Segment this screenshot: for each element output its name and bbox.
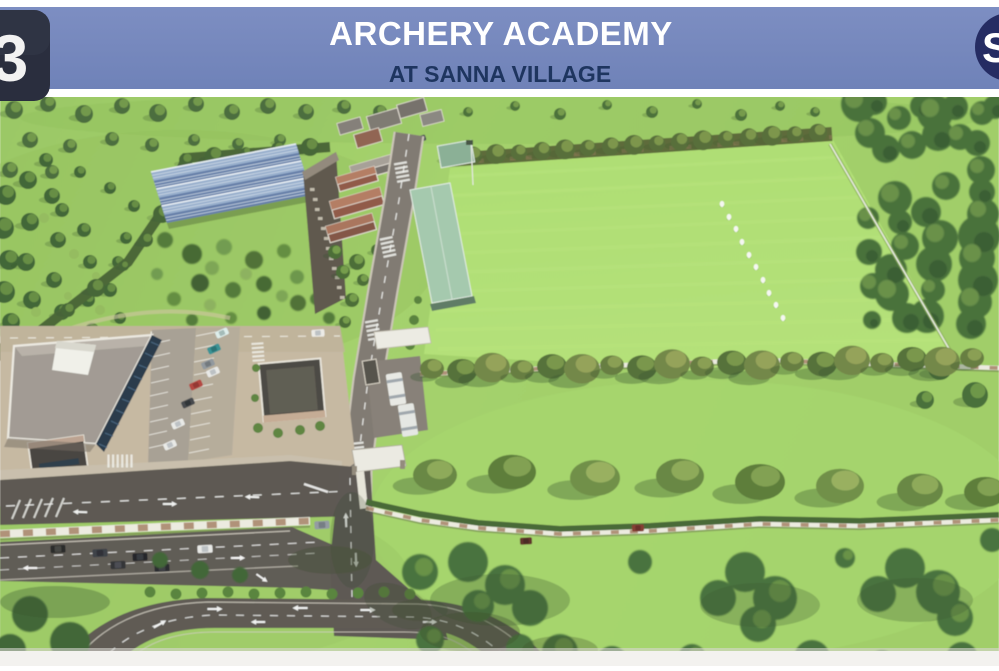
- svg-text:AT SANNA VILLAGE: AT SANNA VILLAGE: [389, 61, 611, 87]
- svg-text:S: S: [982, 24, 999, 71]
- svg-text:ARCHERY ACADEMY: ARCHERY ACADEMY: [329, 15, 673, 52]
- svg-text:3: 3: [0, 21, 28, 95]
